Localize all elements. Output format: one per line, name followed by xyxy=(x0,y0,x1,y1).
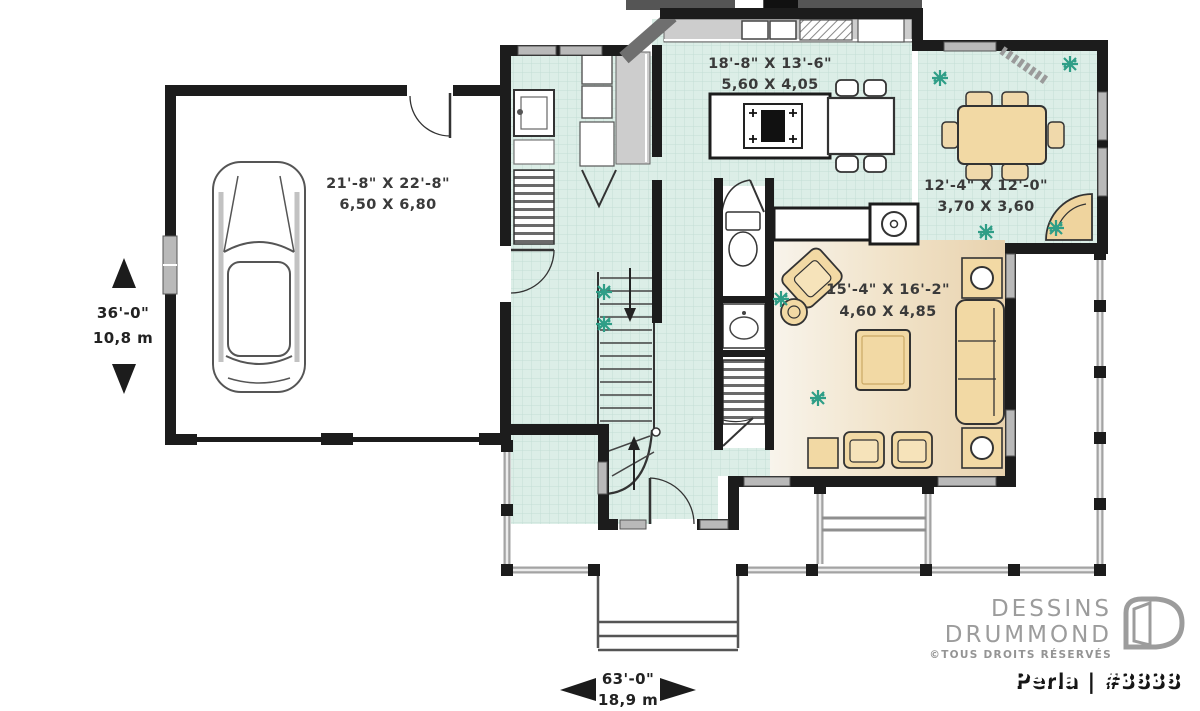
chair xyxy=(836,156,858,172)
lamp-icon xyxy=(971,267,993,289)
sidelight-window xyxy=(620,520,646,529)
garage xyxy=(213,162,305,392)
vanity-sink xyxy=(723,304,765,348)
plant-icon xyxy=(773,291,789,307)
cooktop xyxy=(744,104,802,148)
armchair xyxy=(844,432,884,468)
depth-imperial: 36'-0" xyxy=(97,304,149,322)
arrow-up-icon xyxy=(112,258,136,288)
car xyxy=(213,162,305,392)
end-table-lamp xyxy=(962,258,1002,298)
window xyxy=(1098,148,1107,196)
window xyxy=(744,477,790,486)
floor-plan-drawing: 21'-8" X 22'-8" 6,50 X 6,80 18'-8" X 13'… xyxy=(0,0,1200,711)
window xyxy=(1006,410,1015,456)
window xyxy=(938,477,996,486)
drummond-logo-mark xyxy=(1126,599,1182,647)
toilet xyxy=(726,212,760,266)
window xyxy=(518,46,556,55)
floor-plan-sheet: 21'-8" X 22'-8" 6,50 X 6,80 18'-8" X 13'… xyxy=(0,0,1200,711)
plan-name: Perla | #3838 xyxy=(1013,667,1179,692)
chair xyxy=(942,122,958,148)
studio-name-line1: DESSINS xyxy=(991,596,1112,622)
kitchen-label-metric: 5,60 X 4,05 xyxy=(721,77,818,93)
arrow-left-icon xyxy=(560,678,596,701)
studio-name-line2: DRUMMOND xyxy=(945,622,1112,648)
end-table xyxy=(808,438,838,468)
arrow-right-icon xyxy=(660,678,696,701)
window xyxy=(163,236,177,294)
chair xyxy=(864,156,886,172)
width-metric: 18,9 m xyxy=(598,691,658,709)
plant-icon xyxy=(932,70,948,86)
garage-house-door xyxy=(407,83,453,138)
width-imperial: 63'-0" xyxy=(602,670,654,688)
newel-post xyxy=(652,428,660,436)
faucet-icon xyxy=(517,109,523,115)
plant-icon xyxy=(1062,56,1078,72)
living-label-metric: 4,60 X 4,85 xyxy=(839,304,936,320)
window xyxy=(1098,92,1107,140)
half-wall-console xyxy=(774,208,872,240)
appliance xyxy=(582,52,612,84)
plant-icon xyxy=(810,390,826,406)
kitchen-sink xyxy=(742,21,768,39)
chair xyxy=(836,80,858,96)
window xyxy=(944,42,996,51)
arrow-down-icon xyxy=(112,364,136,394)
bathroom xyxy=(722,180,765,446)
window xyxy=(598,462,607,494)
pantry xyxy=(580,122,614,166)
window xyxy=(560,46,602,55)
sidelight-window xyxy=(700,520,728,529)
chair xyxy=(1048,122,1064,148)
linen-closet xyxy=(723,360,765,424)
kitchen-label-imperial: 18'-8" X 13'-6" xyxy=(708,56,832,72)
branding: DESSINS DRUMMOND ©TOUS DROITS RÉSERVÉS P… xyxy=(929,596,1182,695)
armchair xyxy=(892,432,932,468)
window xyxy=(1006,254,1015,298)
plant-icon xyxy=(978,224,994,240)
sofa xyxy=(956,300,1004,424)
garage-label-imperial: 21'-8" X 22'-8" xyxy=(326,176,450,192)
closet-shelving xyxy=(514,170,554,244)
dimension-marker-width: 63'-0" 18,9 m xyxy=(560,670,696,709)
appliance xyxy=(582,86,612,118)
dimension-marker-depth: 36'-0" 10,8 m xyxy=(93,258,153,394)
coffee-table xyxy=(856,330,910,390)
dishwasher xyxy=(800,20,852,40)
dining-label-imperial: 12'-4" X 12'-0" xyxy=(924,178,1048,194)
porch-side-steps xyxy=(814,484,934,564)
end-table-lamp xyxy=(962,428,1002,468)
counter xyxy=(616,52,650,164)
depth-metric: 10,8 m xyxy=(93,329,153,347)
cabinet xyxy=(514,140,554,164)
wood-stove xyxy=(870,204,918,244)
chair xyxy=(864,80,886,96)
refrigerator xyxy=(858,19,904,42)
garage-label-metric: 6,50 X 6,80 xyxy=(339,197,436,213)
plant-icon xyxy=(596,316,612,332)
lamp-icon xyxy=(971,437,993,459)
plant-icon xyxy=(596,284,612,300)
front-steps xyxy=(598,574,738,650)
dining-label-metric: 3,70 X 3,60 xyxy=(937,199,1034,215)
living-label-imperial: 15'-4" X 16'-2" xyxy=(826,282,950,298)
plant-icon xyxy=(1048,220,1064,236)
kitchen-sink xyxy=(770,21,796,39)
rights-notice: ©TOUS DROITS RÉSERVÉS xyxy=(929,648,1112,661)
